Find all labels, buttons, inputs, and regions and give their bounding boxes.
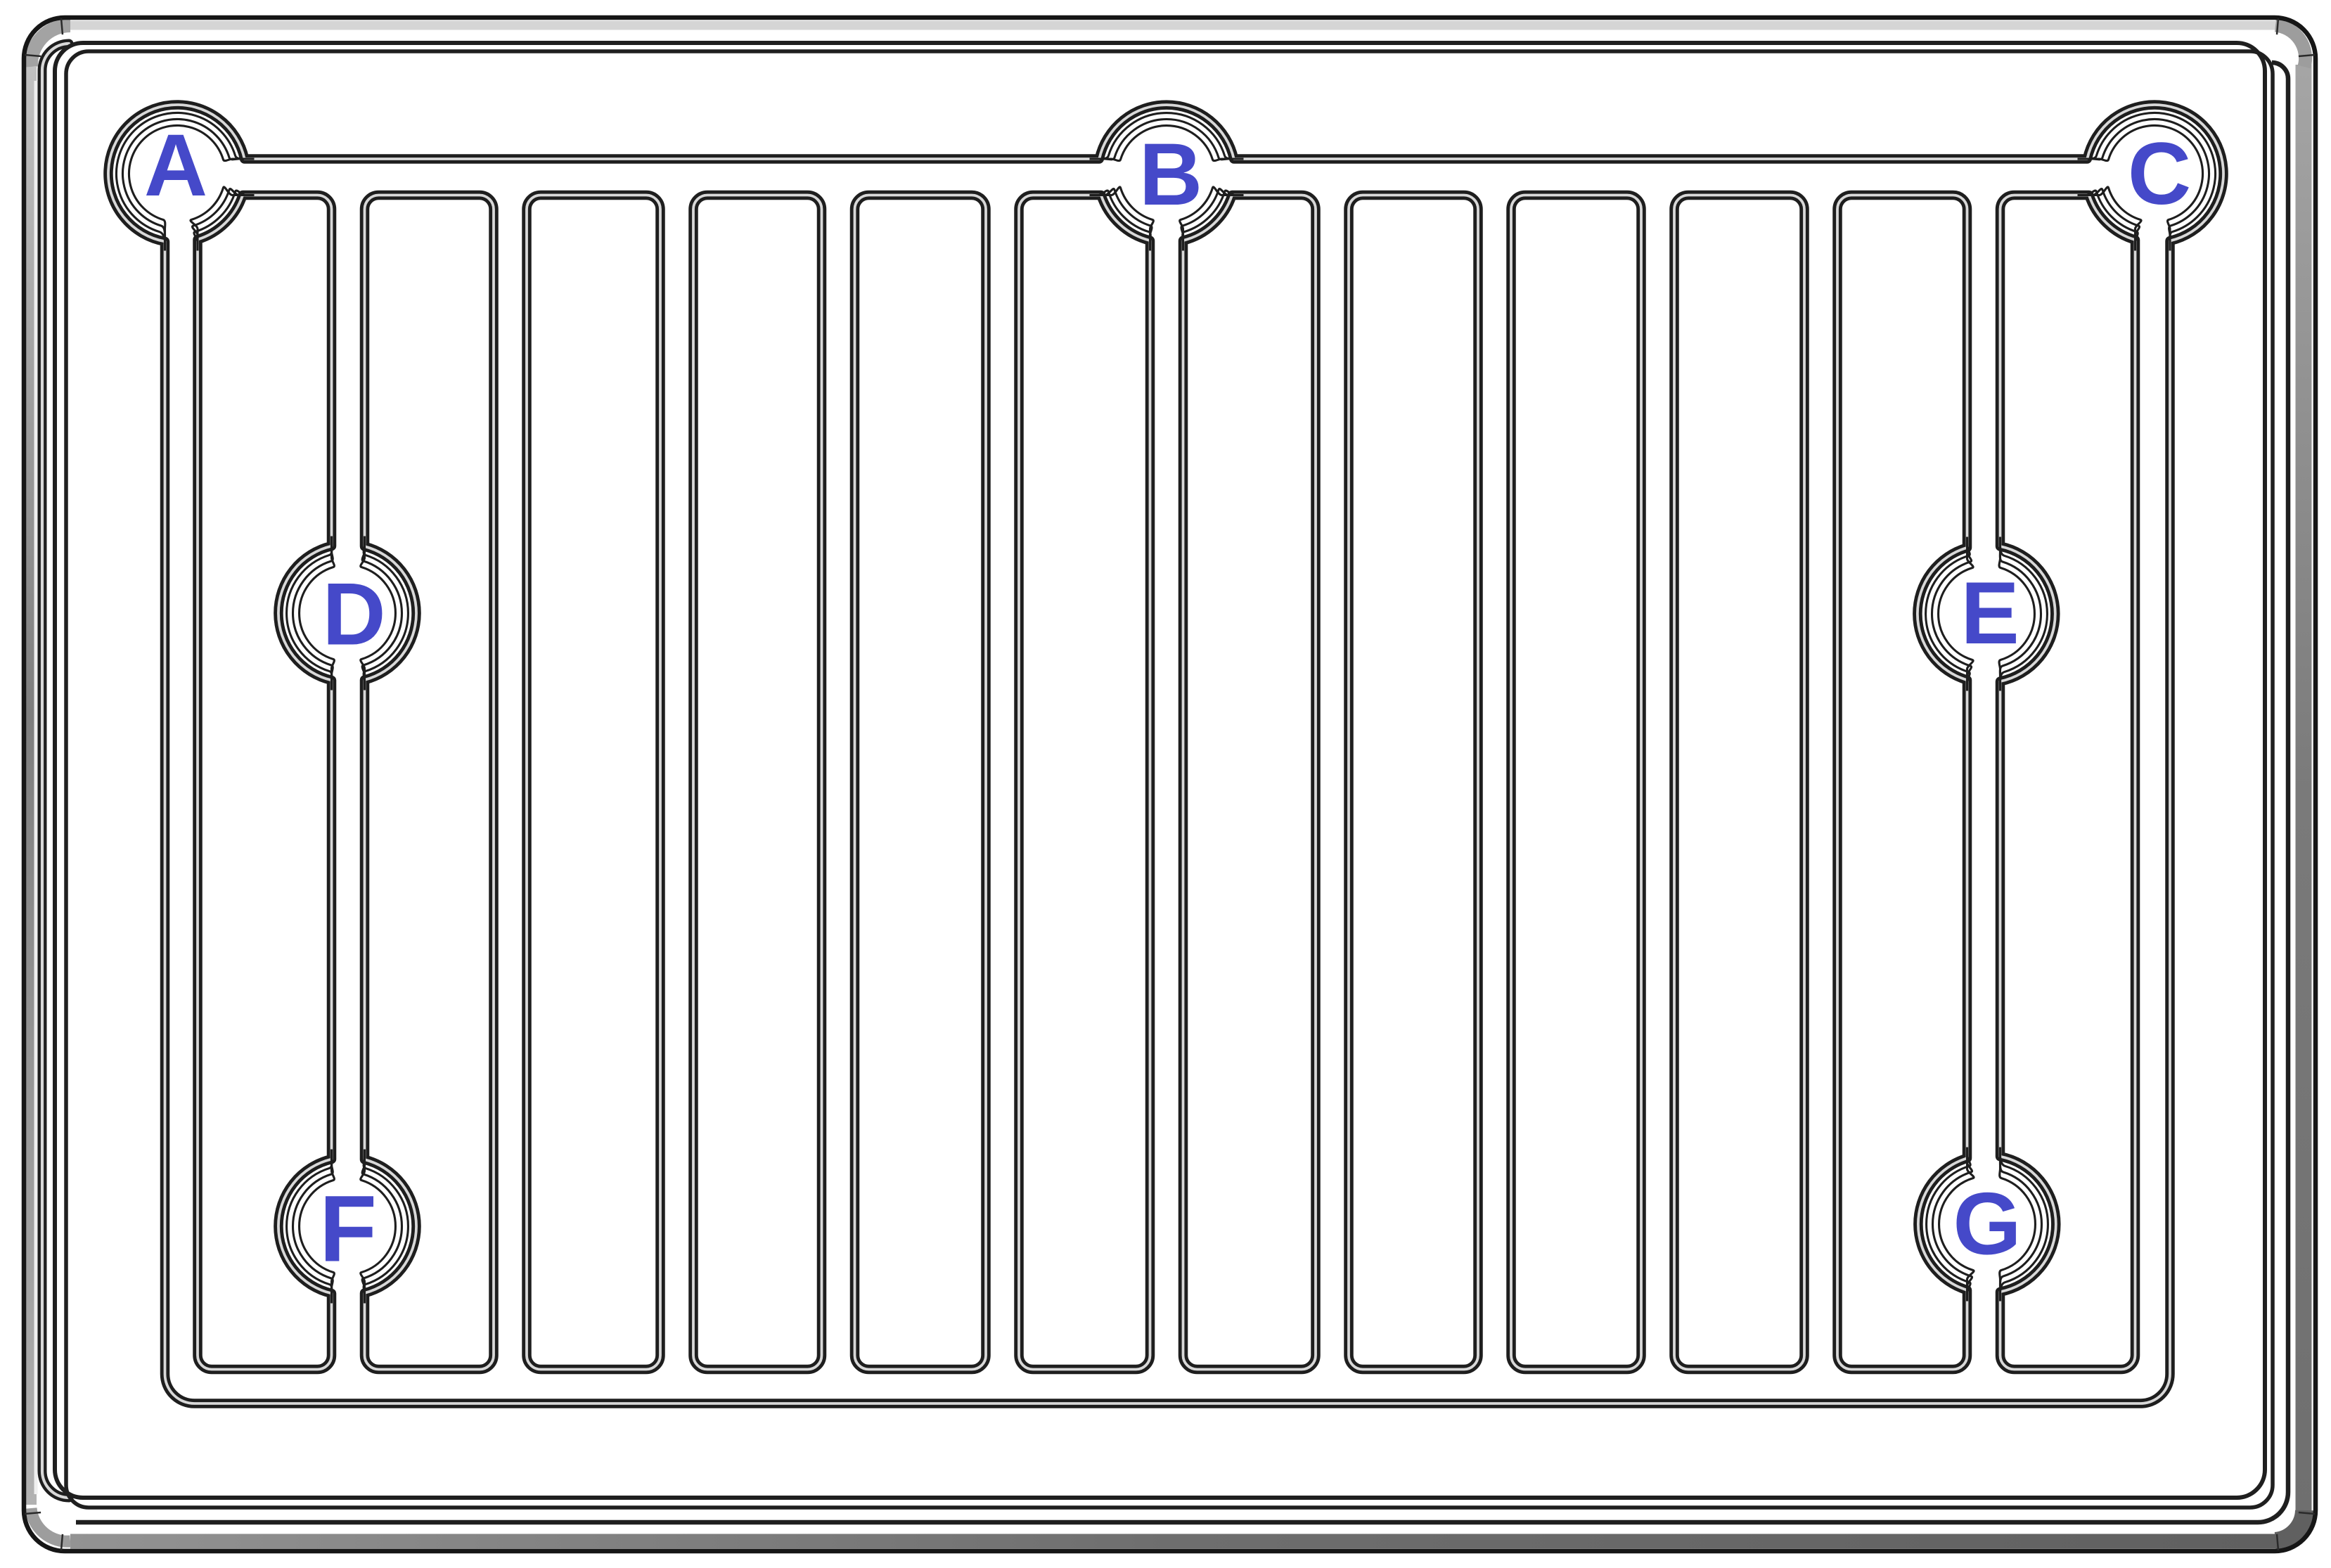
svg-text:E: E (1960, 565, 2019, 662)
svg-text:G: G (1953, 1176, 2021, 1273)
svg-text:F: F (319, 1177, 377, 1282)
svg-text:C: C (2128, 125, 2191, 223)
svg-text:D: D (322, 566, 385, 664)
svg-text:B: B (1139, 126, 1202, 224)
svg-text:A: A (144, 117, 207, 214)
